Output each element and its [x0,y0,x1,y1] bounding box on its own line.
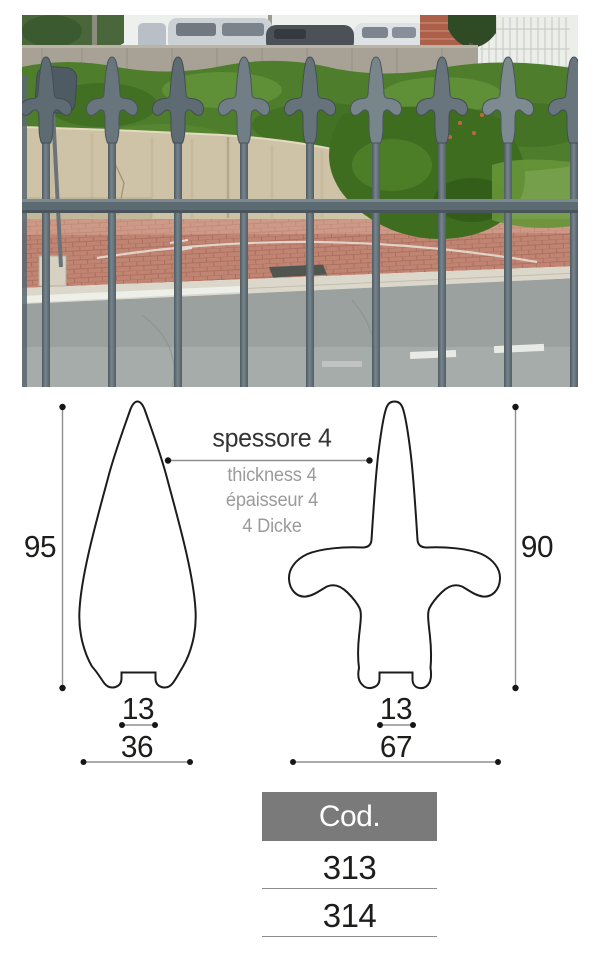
thickness-label-italian: spessore 4 [212,423,331,454]
code-row-314: 314 [262,890,437,937]
spear-profile-outline [79,402,195,688]
thickness-label-english: thickness 4 [227,465,316,487]
catalog-page: 95 90 13 36 13 67 spessore 4 thickness 4… [0,0,600,955]
code-row-313: 313 [262,842,437,889]
code-table-header: Cod. [262,792,437,841]
thickness-label-french: épaisseur 4 [226,490,318,512]
dimension-left-height: 95 [24,529,56,565]
dimension-left-max-width: 36 [121,729,153,765]
dimension-right-height: 90 [521,529,553,565]
thickness-label-german: 4 Dicke [242,516,301,538]
dimension-left-slot-width: 13 [122,691,154,727]
dimension-right-slot-width: 13 [380,691,412,727]
dimension-right-max-width: 67 [380,729,412,765]
